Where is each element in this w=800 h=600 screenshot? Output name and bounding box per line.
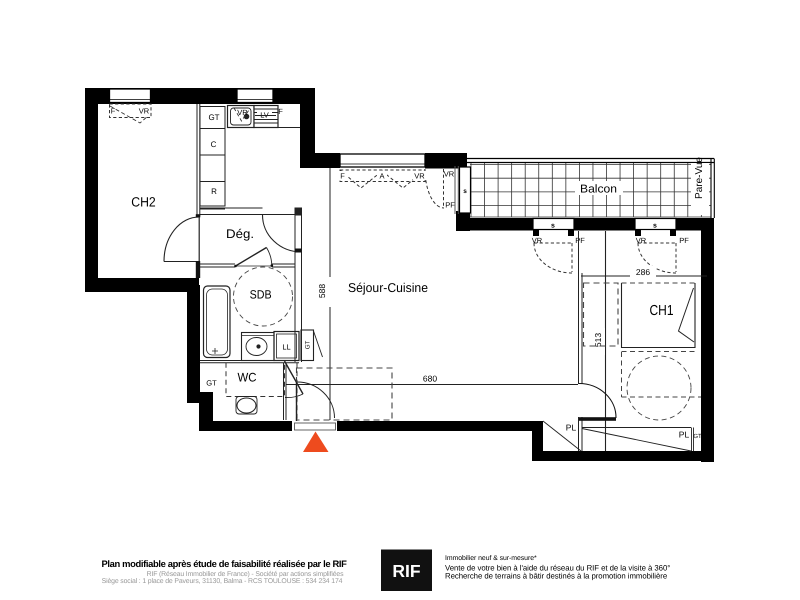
svg-text:Dég.: Dég. xyxy=(226,227,254,241)
svg-text:588: 588 xyxy=(317,284,327,298)
svg-text:GT: GT xyxy=(304,340,311,349)
svg-text:286: 286 xyxy=(636,267,650,277)
svg-text:GT: GT xyxy=(206,379,217,388)
svg-text:VR: VR xyxy=(139,107,150,116)
svg-text:LL: LL xyxy=(282,343,290,352)
svg-text:PF: PF xyxy=(575,236,585,245)
svg-text:Balcon: Balcon xyxy=(580,184,617,196)
svg-text:PL: PL xyxy=(566,423,577,433)
svg-text:Recherche de terrains à bâtir: Recherche de terrains à bâtir destinés à… xyxy=(445,572,667,581)
svg-text:Séjour-Cuisine: Séjour-Cuisine xyxy=(348,280,428,295)
svg-text:VR: VR xyxy=(444,170,455,179)
svg-text:PF: PF xyxy=(679,236,689,245)
svg-text:Siège social : 1 place de Pave: Siège social : 1 place de Paveurs, 31130… xyxy=(102,577,343,585)
svg-text:s: s xyxy=(463,188,467,195)
svg-text:A: A xyxy=(379,172,384,181)
svg-text:s: s xyxy=(653,223,657,230)
svg-text:RIF: RIF xyxy=(392,561,421,581)
svg-text:GT: GT xyxy=(208,113,219,122)
svg-text:Pare-Vue: Pare-Vue xyxy=(694,157,705,199)
svg-text:RIF (Réseau Immobilier de Fran: RIF (Réseau Immobilier de France) - Soci… xyxy=(147,570,344,578)
svg-text:VR: VR xyxy=(636,236,647,245)
svg-text:F: F xyxy=(340,172,345,181)
svg-text:CH1: CH1 xyxy=(650,303,674,319)
svg-text:VR: VR xyxy=(414,172,425,181)
svg-text:C: C xyxy=(211,140,217,149)
svg-text:Plan modifiable après étude de: Plan modifiable après étude de faisabili… xyxy=(101,558,347,569)
svg-text:VR: VR xyxy=(237,108,248,117)
svg-text:F: F xyxy=(111,107,116,116)
svg-text:R: R xyxy=(211,187,217,196)
svg-text:VR: VR xyxy=(532,236,543,245)
svg-text:513: 513 xyxy=(593,333,603,347)
svg-text:PF: PF xyxy=(445,201,455,210)
svg-text:SDB: SDB xyxy=(250,288,272,302)
svg-text:680: 680 xyxy=(423,374,437,384)
svg-text:CH2: CH2 xyxy=(131,195,156,210)
svg-text:Immobilier neuf & sur-mesure*: Immobilier neuf & sur-mesure* xyxy=(445,555,537,562)
svg-text:LV: LV xyxy=(260,111,269,120)
svg-text:F: F xyxy=(278,107,283,116)
svg-text:WC: WC xyxy=(238,371,257,385)
svg-text:PL: PL xyxy=(679,430,690,440)
svg-text:GT: GT xyxy=(693,433,702,440)
svg-text:s: s xyxy=(551,223,555,230)
